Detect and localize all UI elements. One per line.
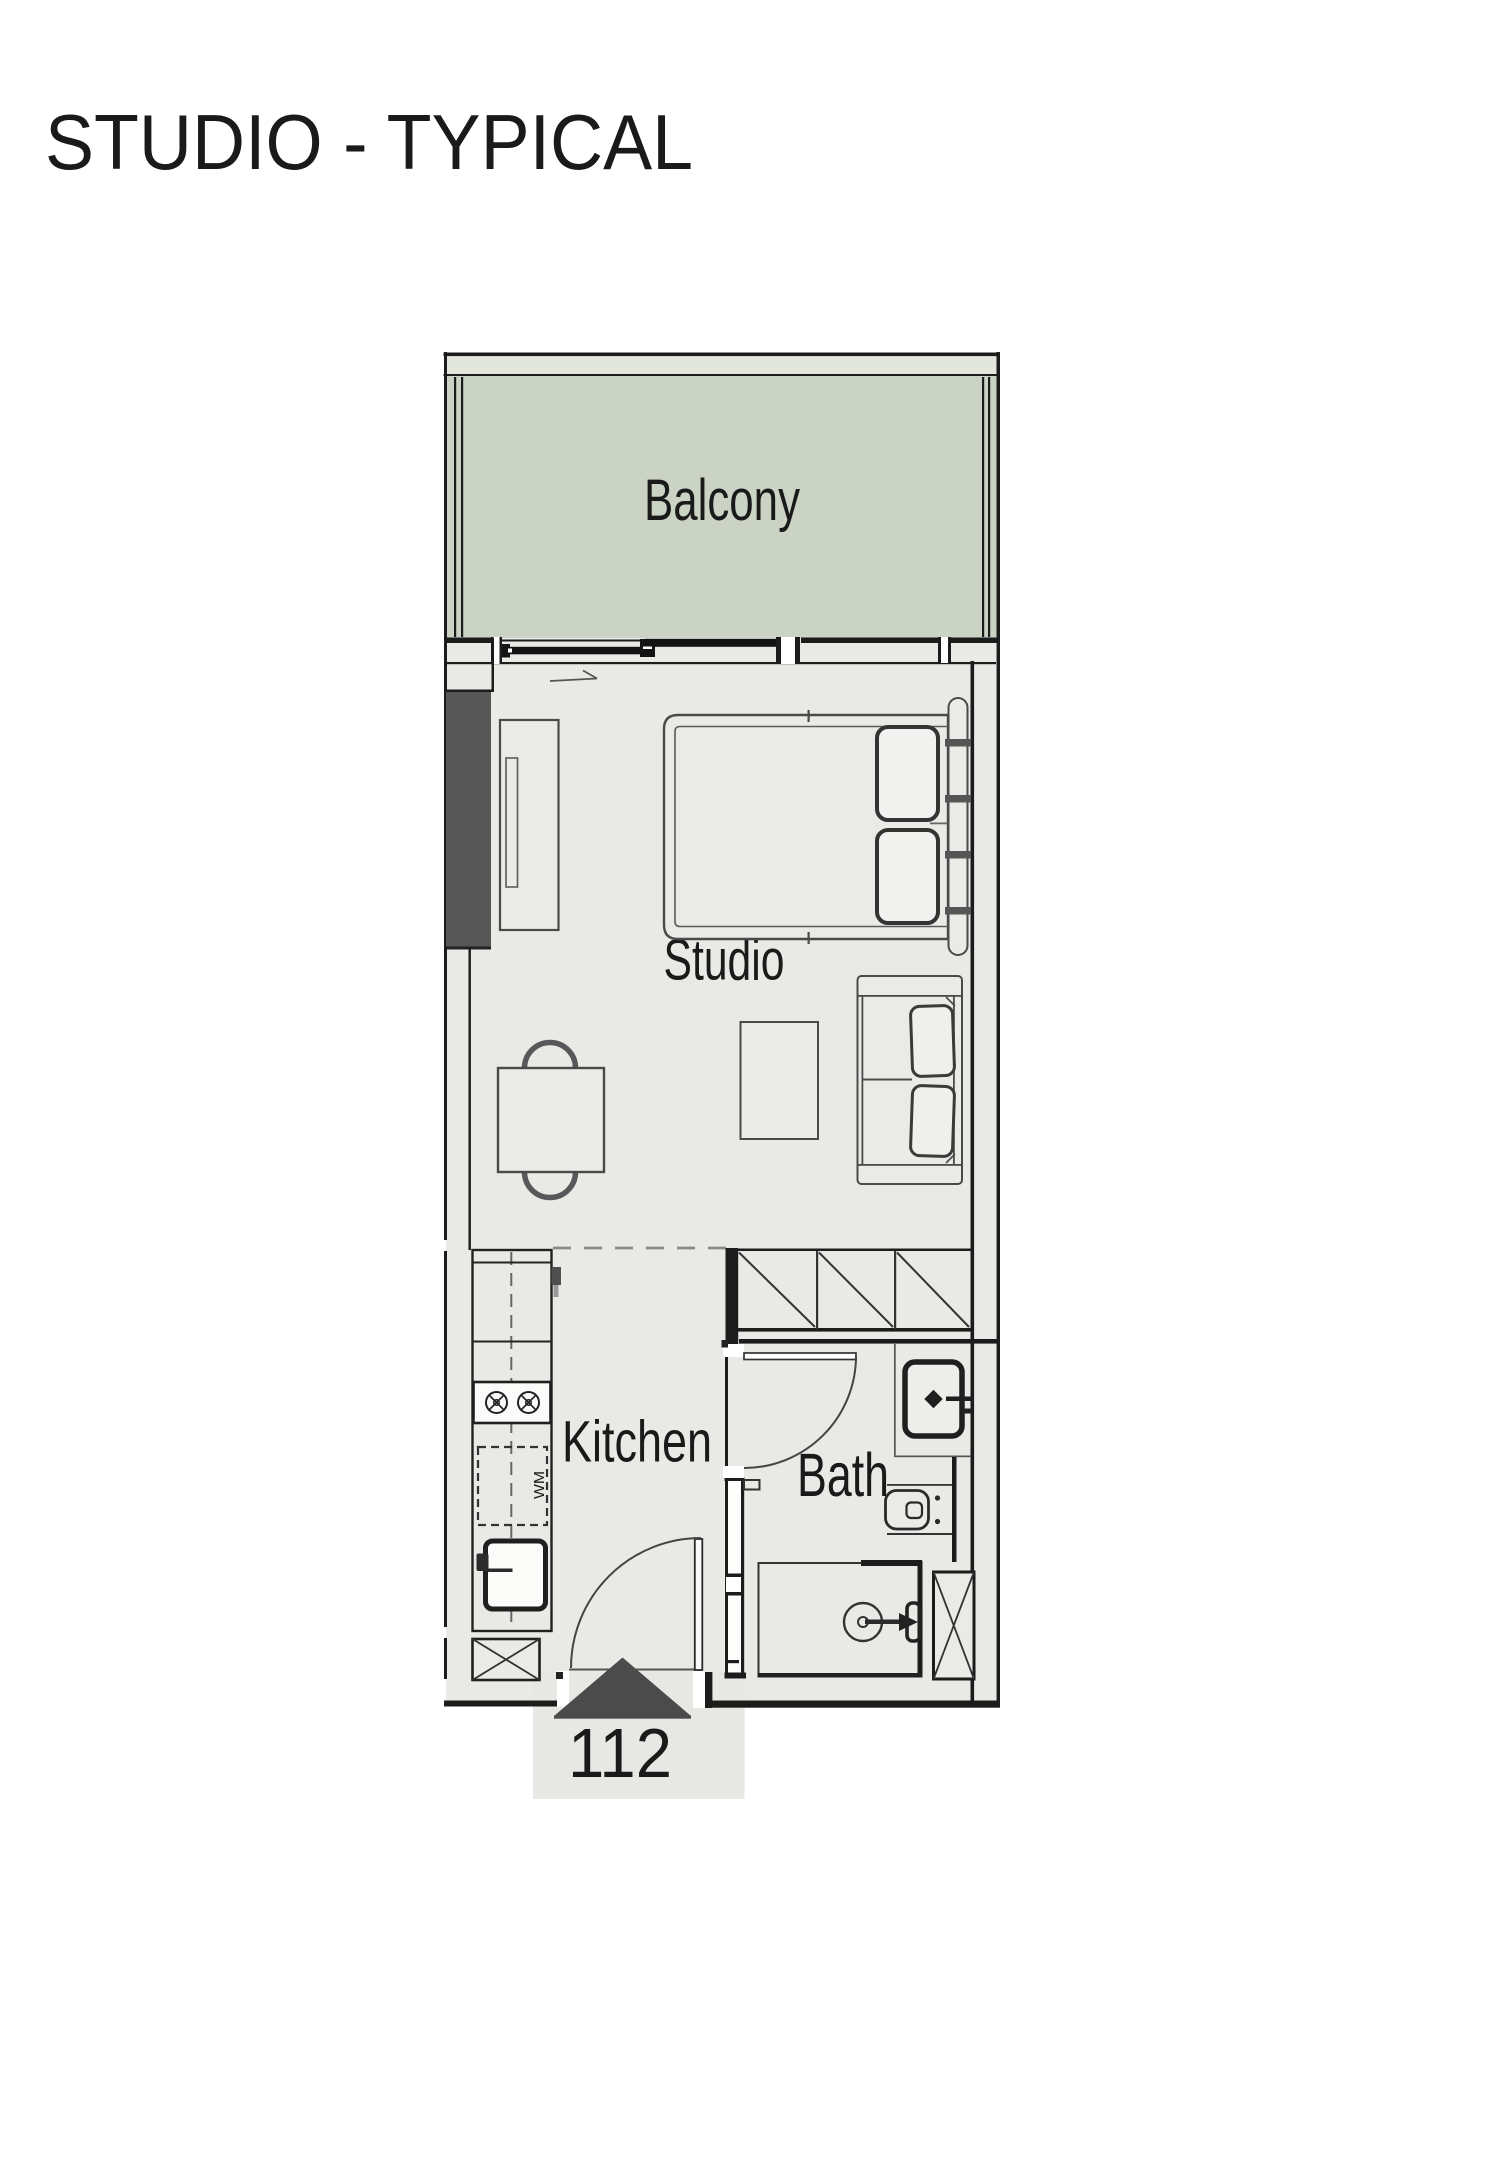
svg-text:112: 112 [568, 1714, 672, 1792]
svg-text:Kitchen: Kitchen [562, 1410, 712, 1475]
svg-text:WM: WM [532, 1471, 548, 1499]
svg-text:STUDIO - TYPICAL: STUDIO - TYPICAL [45, 98, 693, 186]
svg-text:Balcony: Balcony [644, 468, 800, 533]
svg-text:Bath: Bath [797, 1441, 889, 1509]
